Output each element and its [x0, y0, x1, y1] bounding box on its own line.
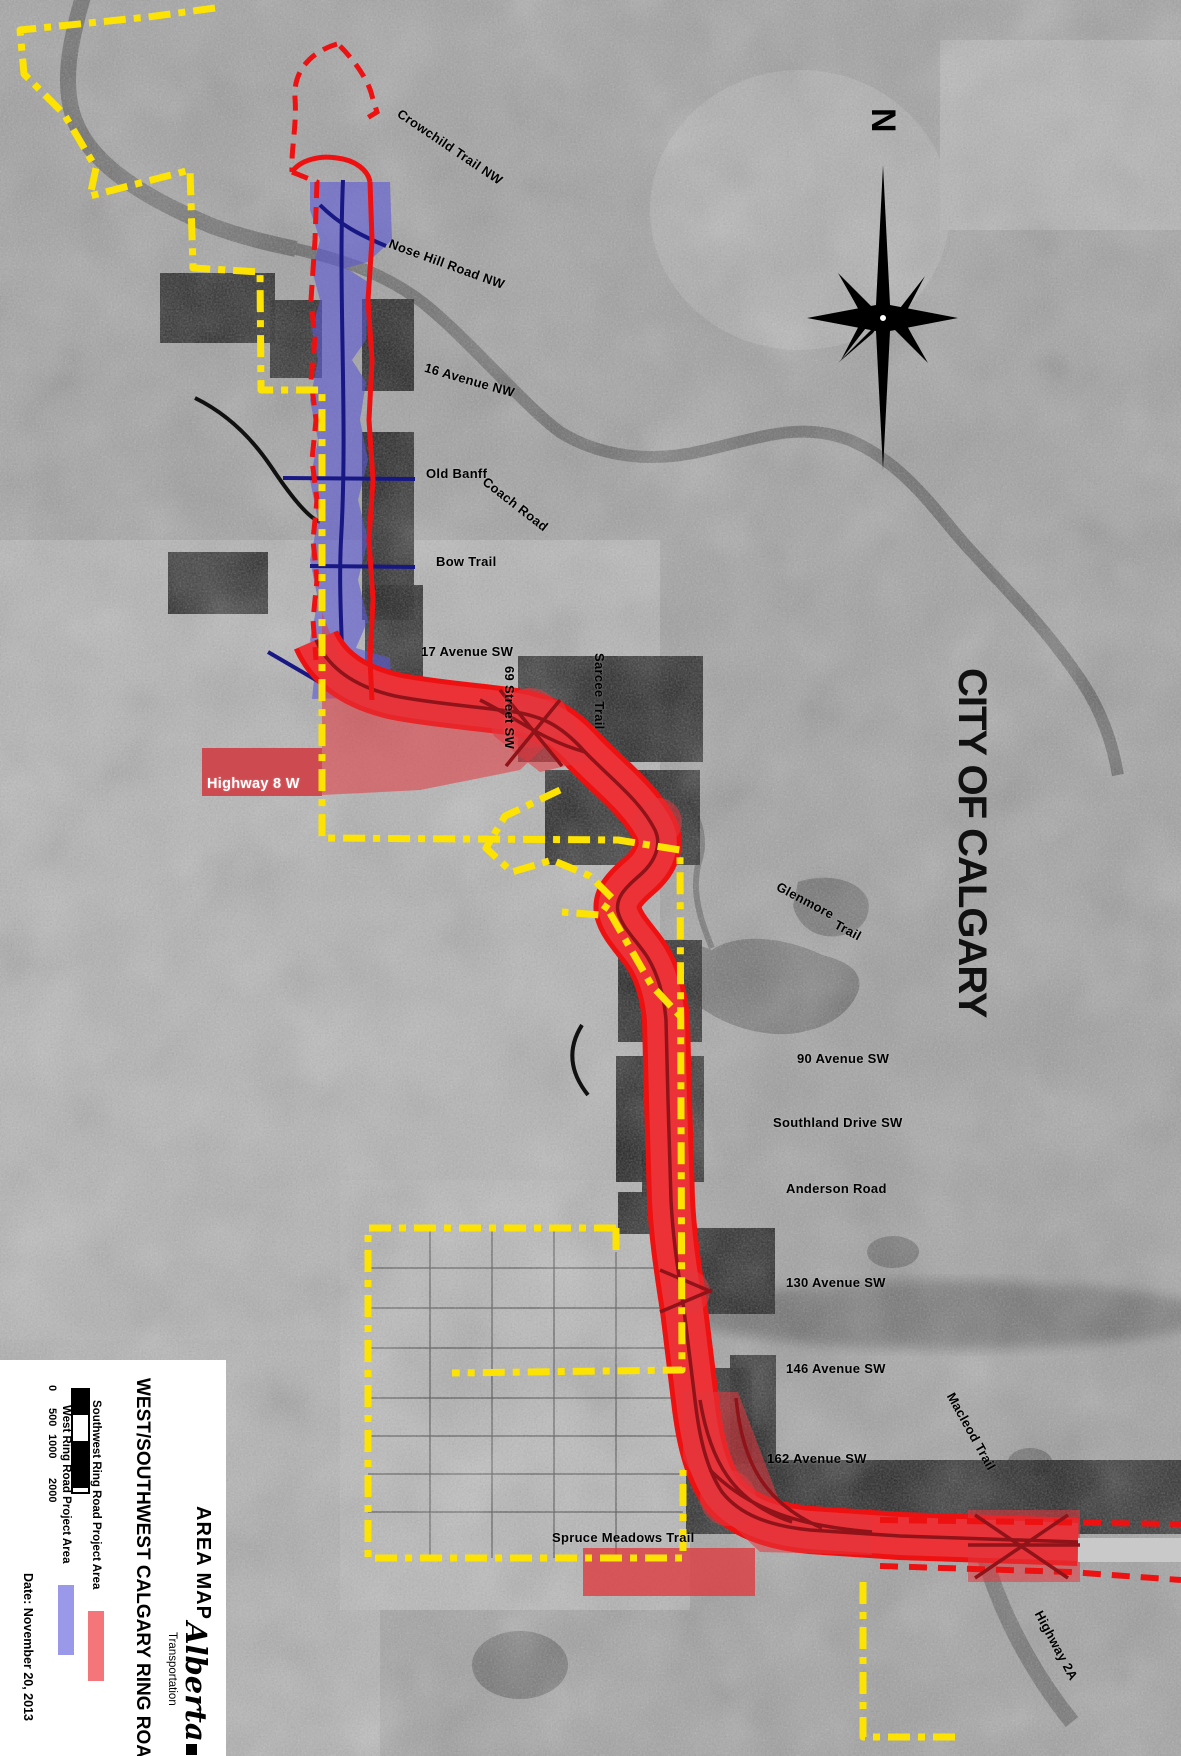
map-title: WEST/SOUTHWEST CALGARY RING ROAD	[131, 1378, 153, 1734]
scale-bar-segment	[73, 1390, 88, 1415]
legend-item-label: Southwest Ring Road Project Area	[90, 1400, 102, 1589]
area-map-title: AREA MAP	[191, 1506, 214, 1616]
compass-north-label: N	[864, 108, 902, 133]
scale-bar	[71, 1388, 90, 1494]
existing-highway-east	[1078, 1538, 1181, 1562]
city-of-calgary-label: CITY OF CALGARY	[949, 668, 994, 1017]
alberta-transportation-logo: Alberta Transportation	[166, 1622, 210, 1747]
scale-tick-2000: 2000	[46, 1478, 58, 1518]
legend-item-southwest: Southwest Ring Road Project Area	[88, 1400, 104, 1681]
legend-swatch-west	[58, 1585, 74, 1655]
date-label: Date: November 20, 2013	[21, 1573, 35, 1713]
logo-dept-text: Transportation	[166, 1632, 178, 1747]
area-map-page: N Crowchild Trail NWNose Hill Road NW16 …	[0, 0, 1181, 1756]
logo-brand-text: Alberta	[179, 1622, 213, 1742]
logo-mark-icon	[186, 1744, 197, 1755]
scale-tick-1000: 1000	[46, 1434, 58, 1474]
scale-bar-segment	[73, 1441, 88, 1488]
legend-swatch-southwest	[88, 1611, 104, 1681]
